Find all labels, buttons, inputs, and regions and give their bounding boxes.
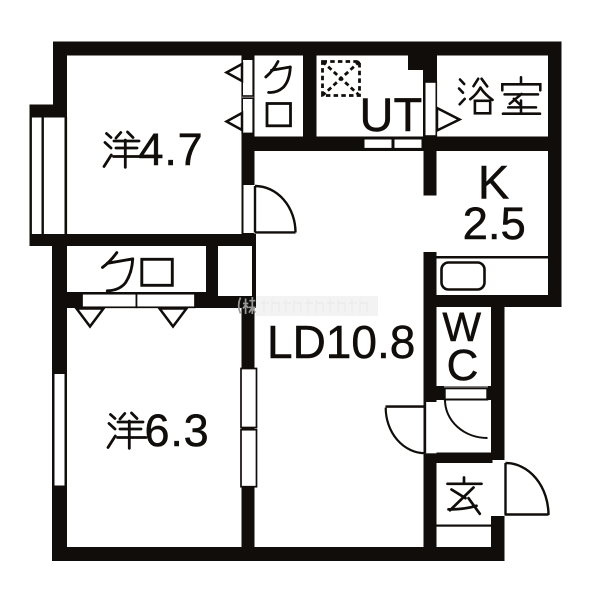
svg-text:C: C bbox=[447, 341, 479, 390]
svg-text:6.3: 6.3 bbox=[145, 405, 210, 456]
svg-text:UT: UT bbox=[360, 88, 423, 141]
svg-text:4.7: 4.7 bbox=[139, 124, 204, 175]
svg-text:2.5: 2.5 bbox=[463, 198, 526, 249]
svg-text:LD10.8: LD10.8 bbox=[267, 316, 415, 368]
